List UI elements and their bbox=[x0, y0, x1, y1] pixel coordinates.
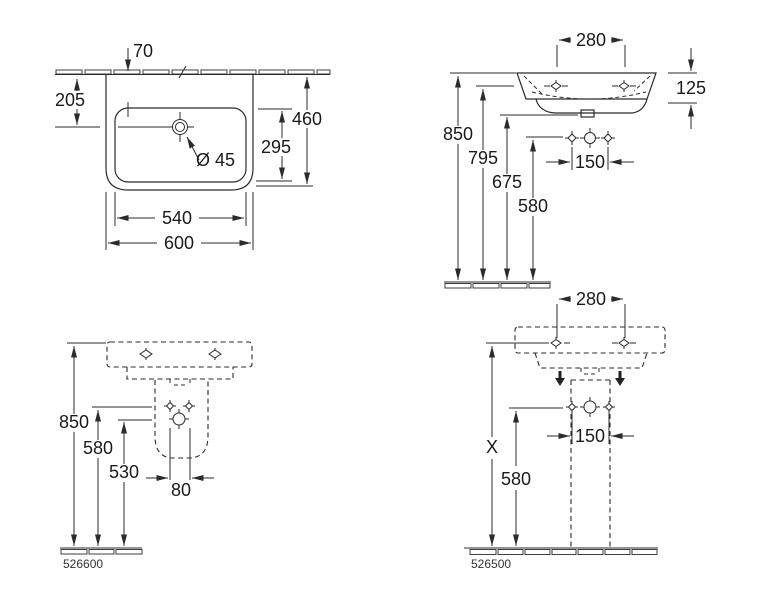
inner-bowl-dashed-curve bbox=[532, 92, 646, 99]
drain-connection-symbol bbox=[169, 409, 189, 429]
inner-edge-dashed-right bbox=[634, 76, 650, 91]
dim-label-600: 600 bbox=[164, 233, 194, 253]
dim-label-580: 580 bbox=[501, 469, 531, 489]
tap-fixing-symbol-left bbox=[565, 131, 579, 145]
dim-label-70: 70 bbox=[133, 41, 153, 61]
basin-lower-dashed-outline bbox=[535, 353, 647, 368]
drawing-canvas: 70 205 460 295 Ø 45 540 600 bbox=[0, 0, 779, 615]
fixing-hole-right bbox=[612, 337, 636, 349]
basin-bowl-outline bbox=[536, 99, 647, 113]
technical-drawing-sheet: 70 205 460 295 Ø 45 540 600 bbox=[0, 0, 779, 615]
mounting-direction-arrow-right bbox=[615, 371, 625, 386]
drain-stub-dashed bbox=[170, 379, 190, 385]
dim-label-80: 80 bbox=[171, 480, 191, 500]
dim-label-530: 530 bbox=[109, 462, 139, 482]
dim-label-295: 295 bbox=[261, 137, 291, 157]
dim-label-675: 675 bbox=[492, 172, 522, 192]
fixing-hole-left bbox=[544, 80, 568, 92]
dim-label-x: X bbox=[486, 437, 498, 457]
fixing-hole-right bbox=[209, 348, 221, 360]
tap-fixing-symbol-left bbox=[164, 400, 176, 412]
drain-stub-dashed bbox=[581, 368, 599, 374]
dim-label-850: 850 bbox=[59, 412, 89, 432]
inner-edge-dashed-left bbox=[524, 76, 542, 94]
view-side-pedestal: 850 580 530 80 526600 bbox=[59, 342, 252, 571]
drain-connection-symbol bbox=[580, 128, 600, 148]
dim-label-580: 580 bbox=[83, 438, 113, 458]
wall-tiles bbox=[56, 70, 330, 74]
view-front-pedestal: 280 bbox=[464, 289, 665, 571]
floor-tiles bbox=[445, 284, 550, 289]
mounting-direction-arrow-left bbox=[555, 371, 565, 386]
tap-fixing-symbol-left bbox=[566, 401, 578, 413]
dim-label-280: 280 bbox=[576, 30, 606, 50]
tap-fixing-symbol-right bbox=[603, 401, 615, 413]
dim-label-205: 205 bbox=[55, 90, 85, 110]
dim-label-850: 850 bbox=[443, 124, 473, 144]
view-front-wall-hung: 280 125 850 795 675 580 150 bbox=[443, 30, 706, 288]
dim-label-drain-diameter: Ø 45 bbox=[196, 150, 235, 170]
drain-connection-symbol bbox=[580, 397, 600, 417]
fixing-hole-left bbox=[140, 348, 152, 360]
tap-hole-outer-circle bbox=[173, 120, 188, 135]
basin-lower-dashed-outline bbox=[127, 367, 233, 379]
product-number-526500: 526500 bbox=[471, 557, 511, 571]
dim-label-795: 795 bbox=[468, 148, 498, 168]
dim-label-460: 460 bbox=[292, 109, 322, 129]
floor-tiles bbox=[61, 550, 142, 555]
basin-dashed-outline bbox=[515, 327, 665, 353]
fixing-hole-left bbox=[551, 337, 570, 349]
dim-label-280: 280 bbox=[576, 289, 606, 309]
product-number-526600: 526600 bbox=[63, 557, 103, 571]
dim-label-150: 150 bbox=[575, 152, 605, 172]
fixing-hole-right bbox=[612, 80, 636, 92]
dim-label-540: 540 bbox=[162, 208, 192, 228]
tap-fixing-symbol-right bbox=[601, 131, 615, 145]
tap-fixing-symbol-right bbox=[183, 400, 195, 412]
basin-dashed-outline bbox=[107, 342, 252, 367]
floor-tiles bbox=[470, 550, 657, 555]
dim-label-125: 125 bbox=[676, 78, 706, 98]
dim-label-150: 150 bbox=[575, 426, 605, 446]
dim-label-580: 580 bbox=[518, 196, 548, 216]
view-top: 70 205 460 295 Ø 45 540 600 bbox=[55, 41, 330, 253]
